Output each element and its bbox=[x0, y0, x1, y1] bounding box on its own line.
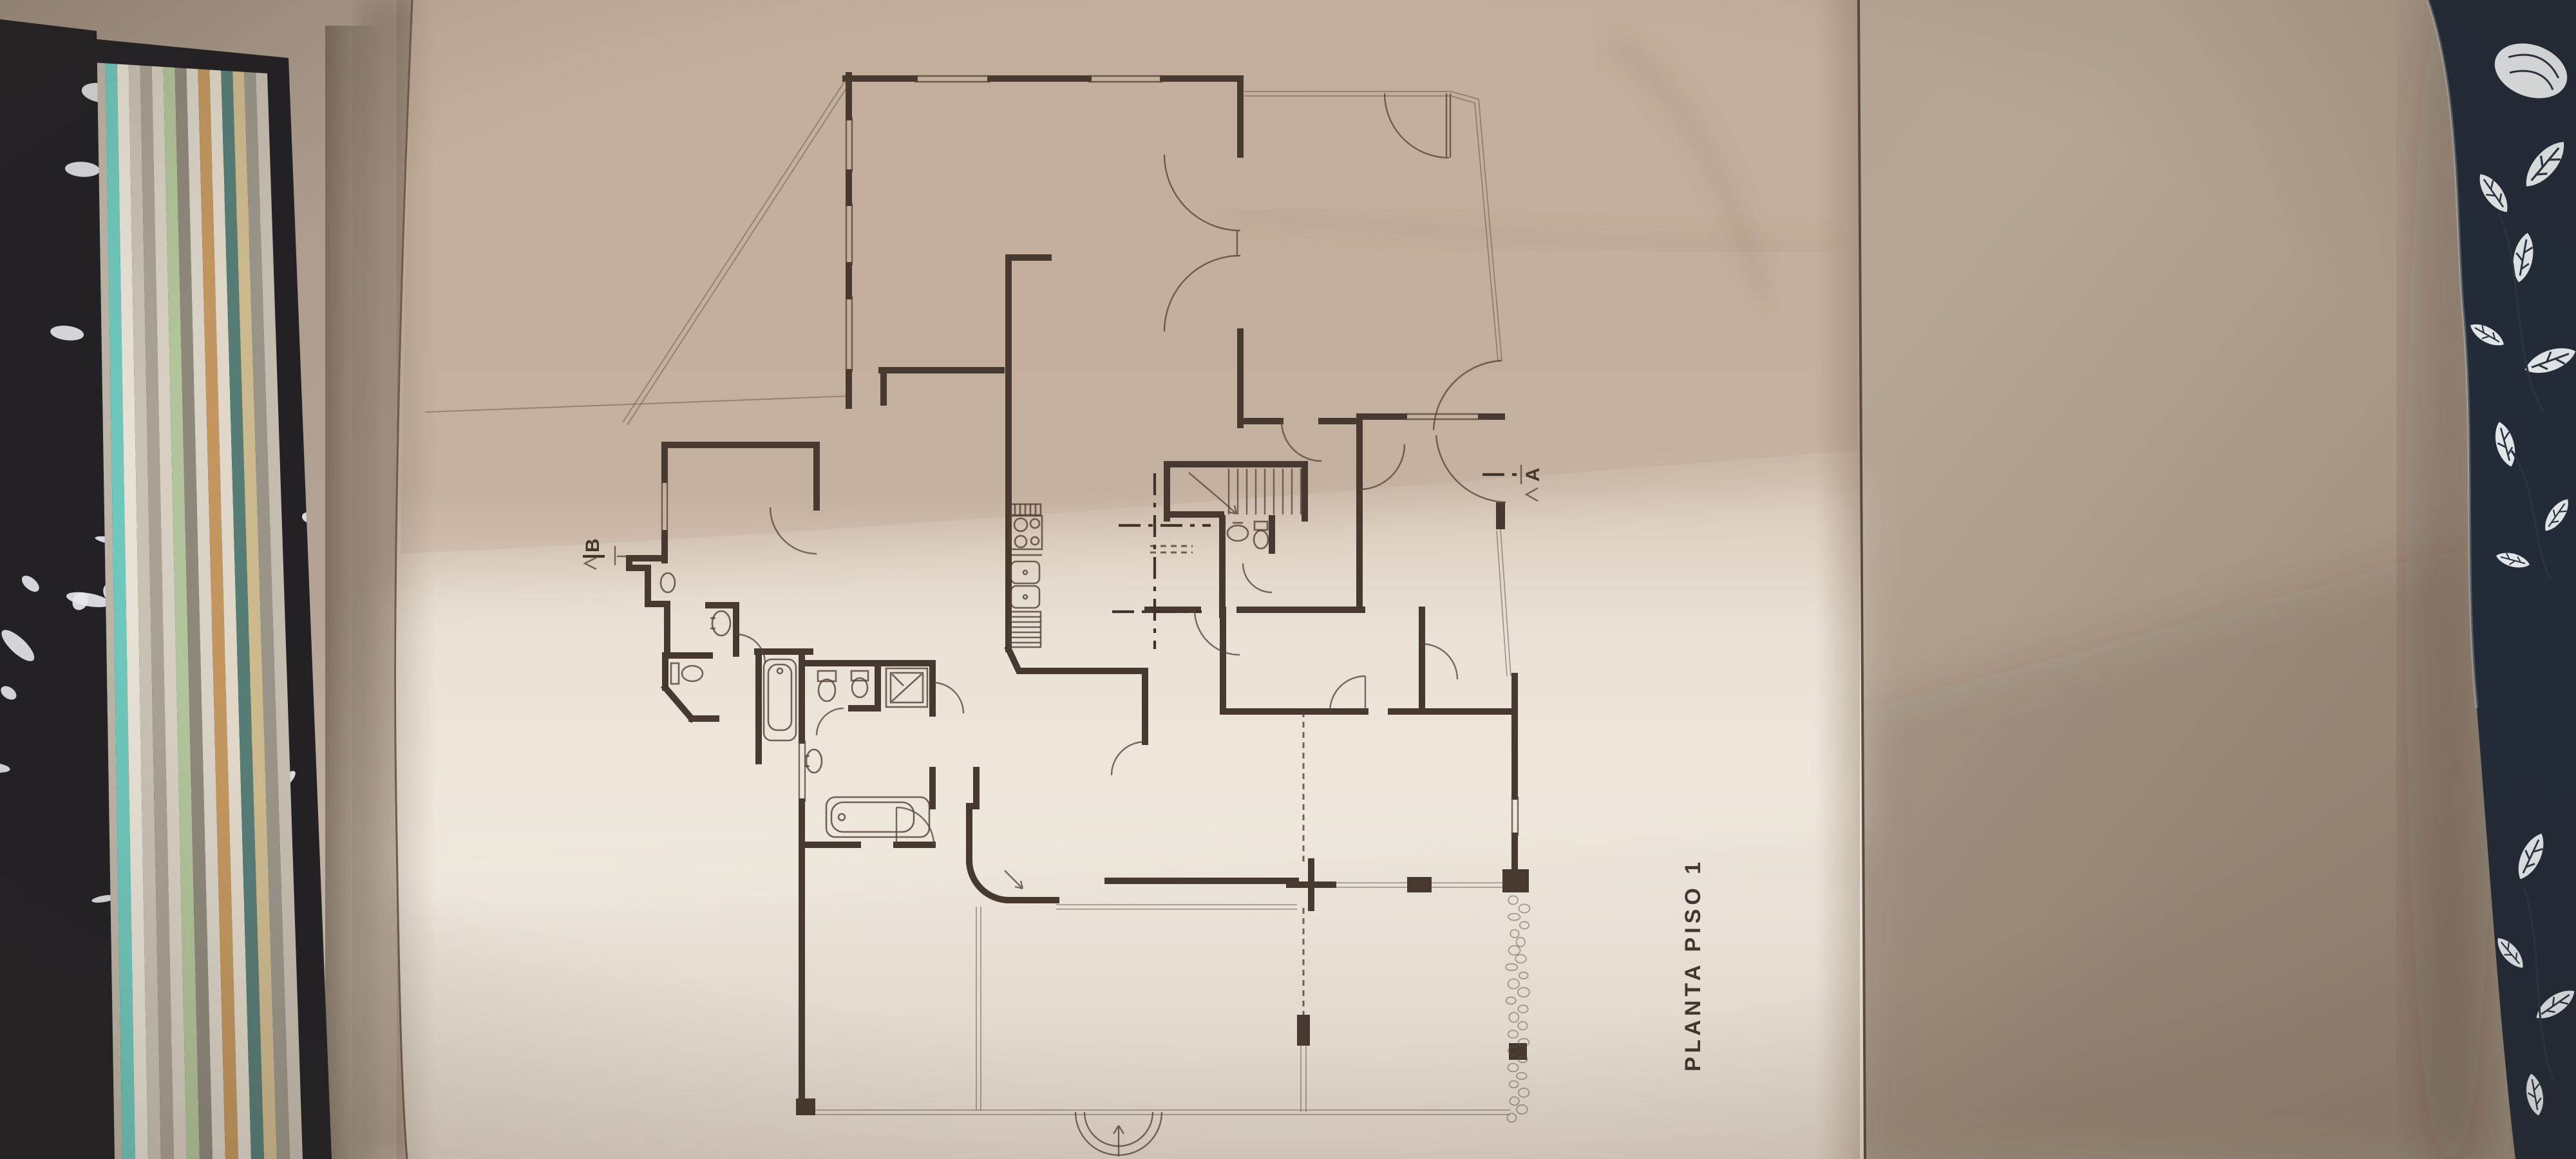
vignette-overlay bbox=[0, 0, 2576, 1159]
photo-of-floor-plan: A B PLANTA PISO 1 bbox=[0, 0, 2576, 1159]
